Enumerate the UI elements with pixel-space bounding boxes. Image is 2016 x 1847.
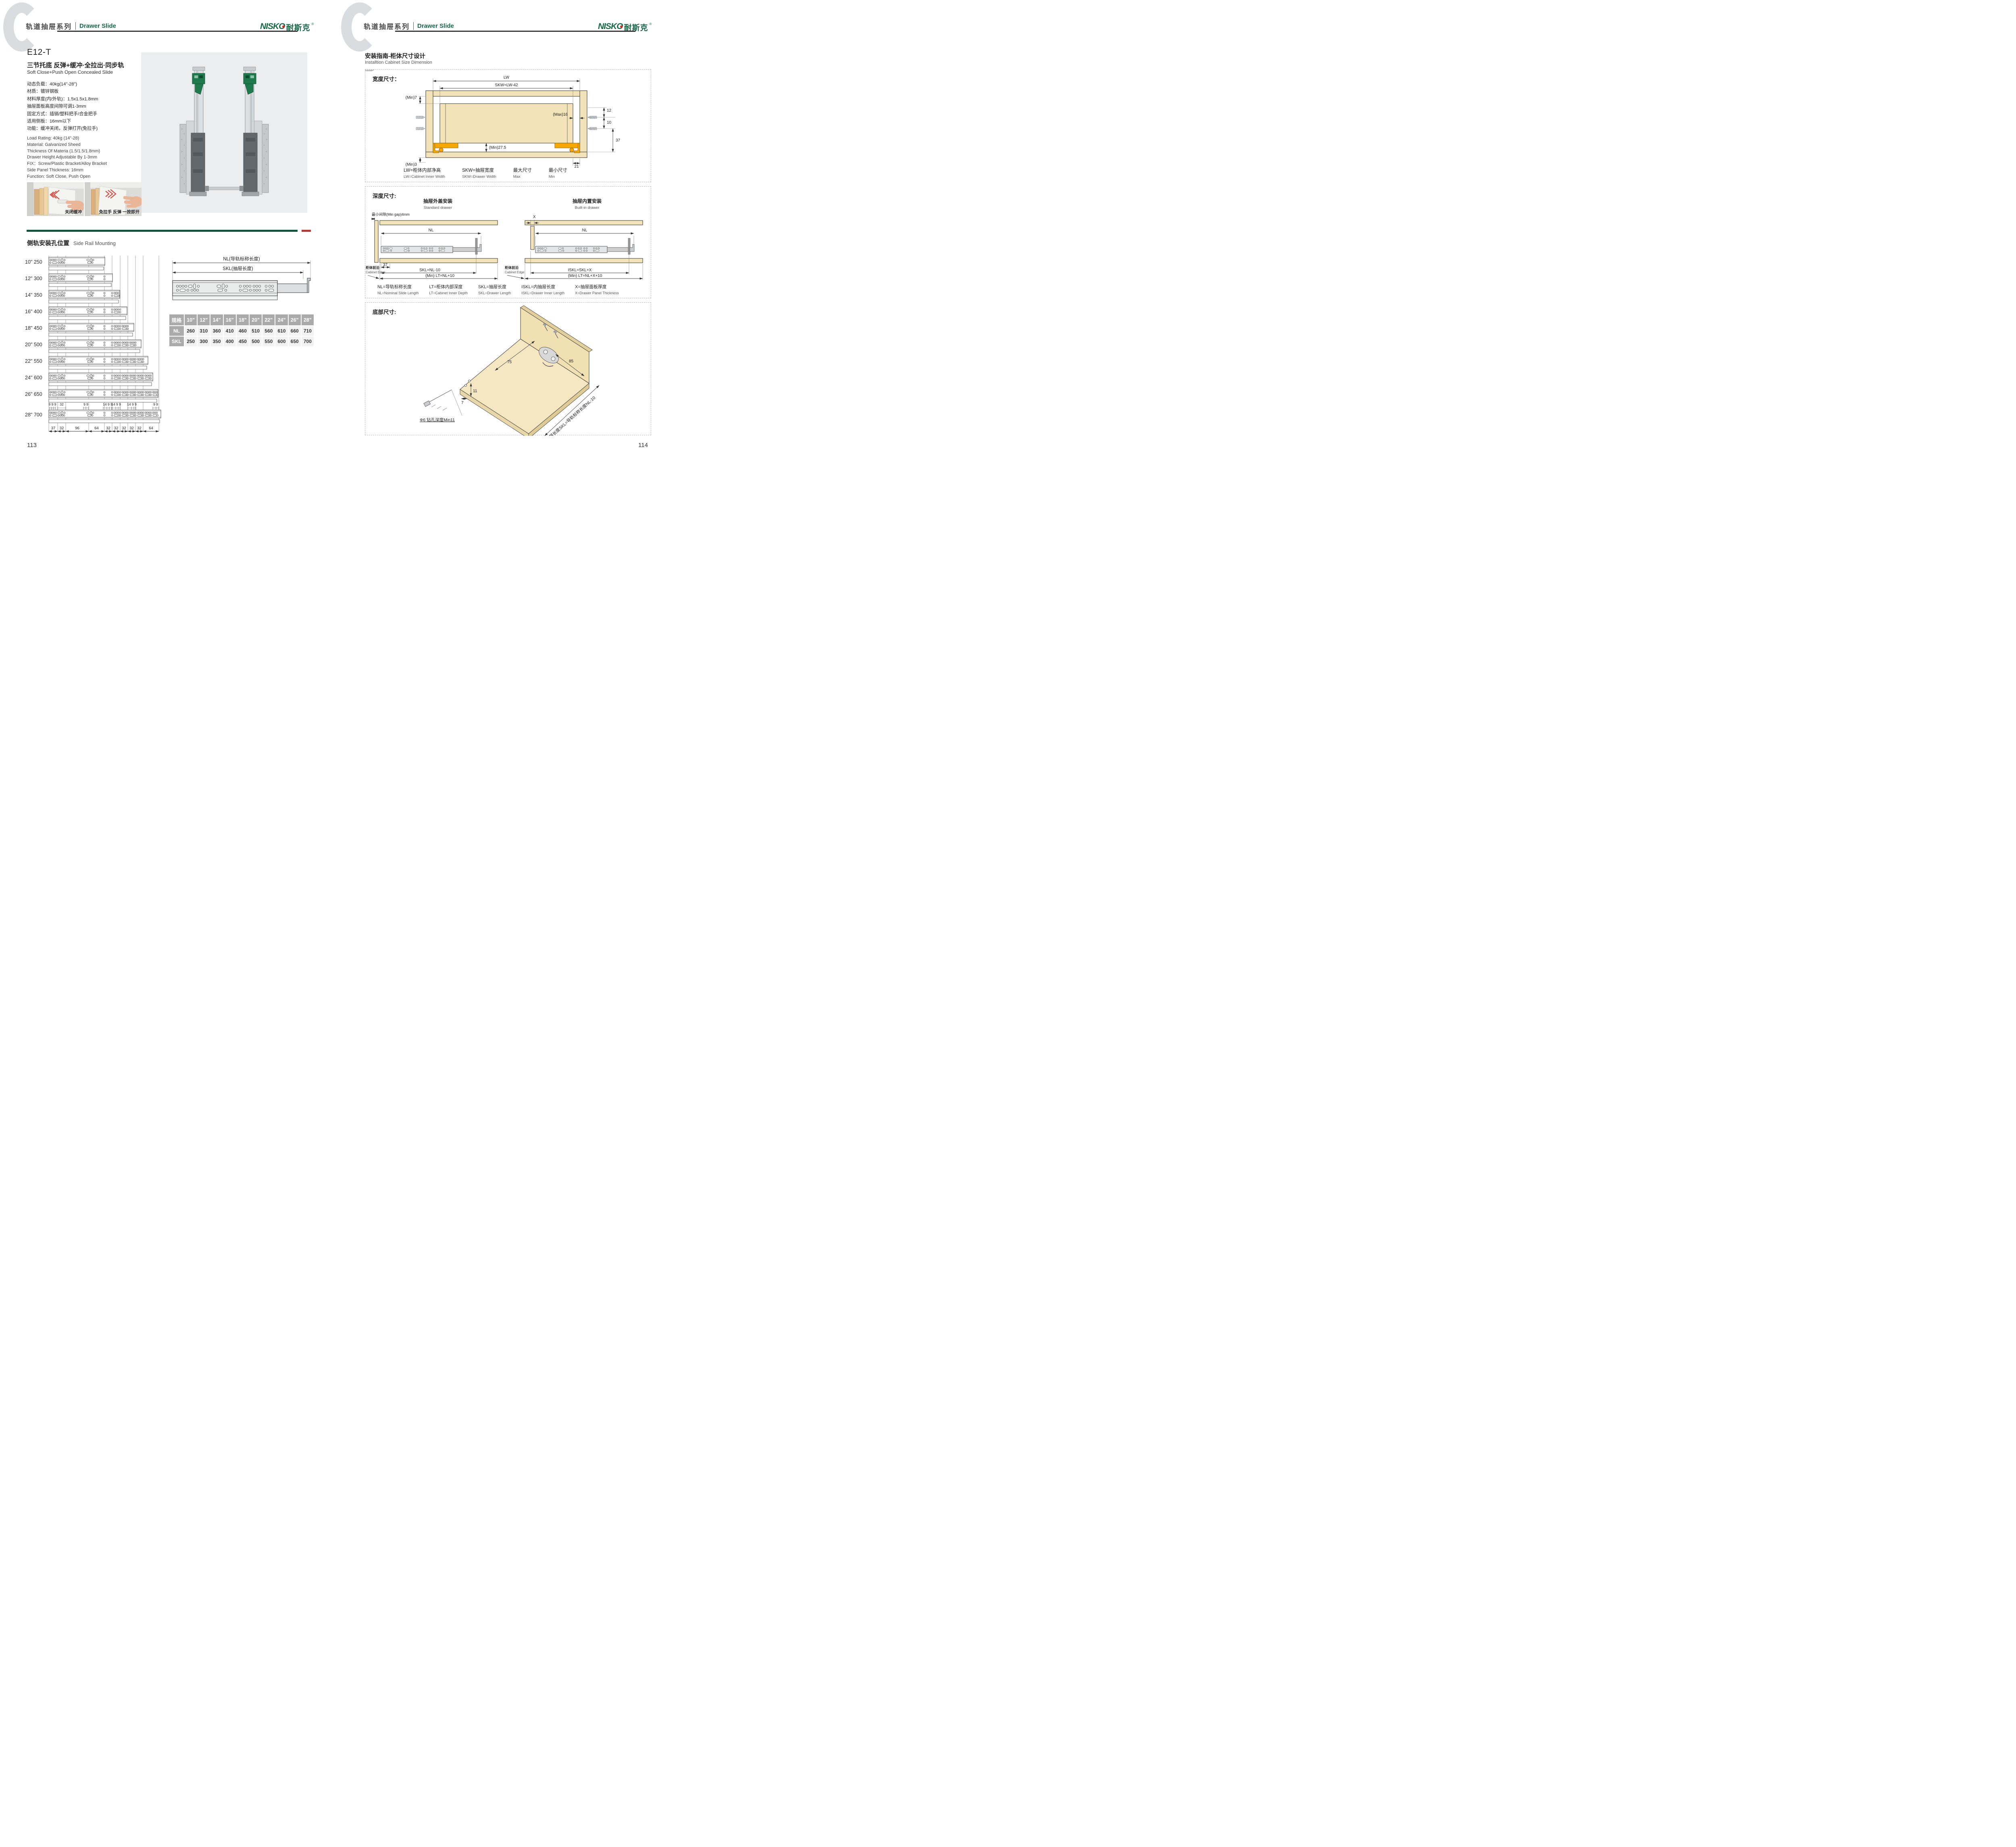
size-table-cell: 410 [224, 326, 236, 336]
sync-rod [207, 187, 241, 190]
logo-latin: NISKO [598, 22, 623, 31]
svg-text:22" 550: 22" 550 [25, 358, 42, 364]
dim-7: 7 [461, 401, 464, 405]
size-table-cell: 650 [289, 337, 301, 346]
legend-item: SKW=抽屉宽度 SKW=Drawer Width [462, 167, 496, 179]
dim-min27-5: (Min)27.5 [489, 146, 506, 150]
svg-text:26" 650: 26" 650 [25, 391, 42, 397]
size-table-cell: 310 [198, 326, 210, 336]
header-separator [75, 22, 76, 30]
size-table-cell: 10" [185, 314, 197, 325]
screw-icon [365, 70, 374, 71]
legend-cn: LW=柜体内部净高 [404, 167, 445, 173]
size-table-cell: 560 [262, 326, 275, 336]
dim-max16: (Max)16 [553, 112, 568, 117]
photo-caption: 免拉手 反弹 一按即开 [99, 209, 140, 215]
legend-en: ISKL=Drawer Inner Length [521, 291, 564, 295]
svg-text:64: 64 [94, 426, 99, 431]
legend-en: LW=Cabinet Inner Width [404, 175, 445, 179]
spec-en-line: Material: Galvanized Sheed [27, 142, 107, 148]
slide-hardware-right [555, 143, 580, 153]
size-table: 规格10"12"14"16"18"20"22"24"26"28"NL260310… [169, 314, 314, 346]
size-table-cell: 500 [250, 337, 262, 346]
size-table-cell: 26" [289, 314, 301, 325]
photo-caption: 关闭缓冲 [65, 209, 82, 215]
drill-note: Φ6 钻孔深度Min11 [420, 417, 455, 422]
page-header: 轨道抽屉系列 Drawer Slide [26, 21, 116, 31]
rail-row: 16" 400 [25, 307, 127, 320]
builtin-drawer-diagram: 抽屉内置安装 Built-in drawer X [504, 198, 643, 280]
legend-item: 最大尺寸 Max [513, 167, 532, 179]
depth-legend: NL=导轨标称长度 NL=Nominal Slide Length LT=柜体内… [377, 283, 619, 295]
page-number: 113 [27, 442, 37, 449]
size-table-cell: NL [169, 326, 184, 336]
series-title-en: Drawer Slide [417, 23, 454, 29]
legend-en: SKW=Drawer Width [462, 175, 496, 179]
nl-dim-label: NL(导轨标称长度) [223, 256, 260, 262]
svg-text:32: 32 [60, 426, 64, 431]
dim-85: 85 [569, 359, 574, 364]
install-guide-title-cn: 安装指南-柜体尺寸设计 [365, 52, 425, 60]
legend-item: ISKL=内抽屉长度 ISKL=Drawer Inner Length [521, 283, 564, 295]
legend-cn: 最小尺寸 [549, 167, 567, 173]
svg-text:28" 700: 28" 700 [25, 412, 42, 418]
svg-text:32: 32 [114, 426, 119, 431]
dim-11: 11 [473, 389, 477, 393]
skl-dim-label: SKL(抽屉长度) [223, 266, 253, 271]
catalog-spread: 轨道抽屉系列 Drawer Slide NISKO 耐斯克 ® E12-T 三节… [0, 0, 676, 462]
dim-lt: (Min) LT=NL+10 [425, 274, 455, 278]
svg-text:24" 600: 24" 600 [25, 375, 42, 381]
size-table-cell: 22" [262, 314, 275, 325]
legend-en: LT=Cabinet Inner Depth [429, 291, 468, 295]
svg-text:9 9 9: 9 9 9 [49, 402, 56, 406]
rail-row: 20" 500 [25, 340, 141, 353]
dim-12: 12 [607, 108, 612, 113]
legend-en: Min [549, 175, 567, 179]
svg-text:9 9: 9 9 [153, 402, 158, 406]
photo-push-open: 免拉手 反弹 一按即开 [85, 182, 142, 216]
svg-text:16" 400: 16" 400 [25, 309, 42, 314]
svg-text:18" 450: 18" 450 [25, 325, 42, 331]
rail-row: 12" 300 [25, 274, 112, 287]
dim-37: 37 [383, 263, 388, 267]
dim-nl: NL [582, 228, 587, 233]
size-table-cell: 14" [210, 314, 223, 325]
size-table-cell: 510 [250, 326, 262, 336]
dim-lt: (Min) LT=NL+X+10 [568, 274, 602, 278]
standard-drawer-diagram: 抽屉外盖安装 Standard drawer 最小间隙(Min gap)4mm [365, 198, 498, 280]
dim-75: 75 [507, 360, 512, 364]
svg-text:12" 300: 12" 300 [25, 276, 42, 281]
rail-row: 28" 700 [25, 410, 161, 423]
spec-cn-line: 动态负载：40kg(14"-28") [27, 81, 98, 88]
rail-row: 18" 450 [25, 323, 134, 336]
svg-text:32: 32 [122, 426, 126, 431]
section-title-cn: 侧轨安装孔位置 [27, 239, 69, 247]
product-subtitle-en: Soft Close+Push Open Concealed Slide [27, 69, 113, 75]
svg-text:14 9 9: 14 9 9 [111, 402, 121, 406]
logo-latin: NISKO [260, 22, 285, 31]
svg-text:10" 250: 10" 250 [25, 259, 42, 265]
width-legend: LW=柜体内部净高 LW=Cabinet Inner Width SKW=抽屉宽… [404, 167, 567, 179]
svg-text:32: 32 [137, 426, 142, 431]
spec-en-line: FIX：Screw/Plastic Bracket/Alloy Bracket [27, 161, 107, 167]
series-title-cn: 轨道抽屉系列 [26, 21, 72, 31]
size-table-cell: 400 [224, 337, 236, 346]
legend-item: LW=柜体内部净高 LW=Cabinet Inner Width [404, 167, 445, 179]
spec-en-line: Function: Soft Close, Push Open [27, 174, 107, 180]
logo-registered-icon: ® [650, 22, 652, 26]
legend-cn: ISKL=内抽屉长度 [521, 283, 564, 290]
spec-en-line: Side Panel Thickness: 16mm [27, 167, 107, 174]
section-divider-red [302, 230, 311, 232]
photo-soft-close: 关闭缓冲 [27, 182, 84, 216]
size-table-cell: 250 [185, 337, 197, 346]
page-header: 轨道抽屉系列 Drawer Slide [364, 21, 454, 31]
legend-en: NL=Nominal Slide Length [377, 291, 419, 295]
standard-title-cn: 抽屉外盖安装 [423, 198, 452, 204]
size-table-cell: 460 [237, 326, 249, 336]
legend-item: 最小尺寸 Min [549, 167, 567, 179]
dim-skw: SKW=LW-42 [495, 83, 518, 87]
legend-cn: LT=柜体内部深度 [429, 283, 468, 290]
header-rule [395, 31, 635, 32]
legend-item: X=抽屉面板厚度 X=Drawer Panel Thickness [575, 283, 619, 295]
spec-en-line: Load Rating: 40kg (14"-28) [27, 135, 107, 142]
size-table-cell: 300 [198, 337, 210, 346]
standard-title-en: Standard drawer [424, 206, 452, 210]
size-table-cell: 260 [185, 326, 197, 336]
header-separator [413, 22, 414, 30]
svg-text:96: 96 [75, 426, 79, 431]
legend-cn: X=抽屉面板厚度 [575, 283, 619, 290]
size-table-cell: 360 [210, 326, 223, 336]
legend-en: SKL=Drawer Length [478, 291, 511, 295]
builtin-title-en: Built-in drawer [575, 206, 600, 210]
series-title-en: Drawer Slide [79, 23, 116, 29]
rail-row: 10" 250 [25, 257, 105, 270]
dim-nl: NL [429, 228, 434, 233]
svg-text:32: 32 [106, 426, 110, 431]
product-subtitle-cn: 三节托底 反弹+缓冲·全拉出·同步轨 [27, 60, 124, 69]
size-table-cell: 700 [302, 337, 314, 346]
size-table-cell: 600 [275, 337, 287, 346]
spec-cn-line: 抽屉面板高度间隙可调1-3mm [27, 103, 98, 110]
header-rule [57, 31, 298, 32]
section-title-en: Side Rail Mounting [73, 241, 116, 246]
legend-cn: NL=导轨标称长度 [377, 283, 419, 290]
product-photo [141, 52, 307, 213]
specs-en-list: Load Rating: 40kg (14"-28)Material: Galv… [27, 135, 107, 180]
size-table-cell: 16" [224, 314, 236, 325]
size-table-cell: 550 [262, 337, 275, 346]
legend-item: LT=柜体内部深度 LT=Cabinet Inner Depth [429, 283, 468, 295]
dim-min3: (Min)3 [406, 162, 417, 167]
legend-item: SKL=抽屉长度 SKL=Drawer Length [478, 283, 511, 295]
cabinet-edge-cn: 柜体前沿 [504, 266, 519, 270]
rail-row: 14" 350 [25, 290, 120, 303]
bottom-dimension-drawing: 75 85 11 7 Φ6 钻孔深度Min11 抽屉长度SKL=导轨标称长度NL… [365, 303, 652, 436]
dim-10: 10 [607, 121, 612, 125]
svg-text:64: 64 [149, 426, 153, 431]
min-gap-note: 最小间隙(Min gap)4mm [372, 212, 410, 216]
size-table-cell: 710 [302, 326, 314, 336]
width-dimension-drawing: LW SKW=LW-42 (Min)7 (Max)16 12 10 37 (Mi… [365, 70, 652, 168]
slide-length-diagram: NL(导轨标称长度) SKL(抽屉长度) [169, 252, 314, 306]
size-table-cell: SKL [169, 337, 184, 346]
svg-text:14" 350: 14" 350 [25, 292, 42, 298]
slide-pair-image [141, 52, 307, 213]
svg-text:37: 37 [51, 426, 56, 431]
size-table-cell: 24" [275, 314, 287, 325]
dim-x: X [533, 215, 536, 219]
spec-cn-line: 材料厚度(内/外轨)：1.5x1.5x1.8mm [27, 96, 98, 103]
cabinet-edge-en: Cabinet Edge [366, 270, 385, 274]
builtin-title-cn: 抽屉内置安装 [573, 198, 602, 204]
spec-cn-line: 材质：镀锌钢板 [27, 88, 98, 95]
cabinet-edge-cn: 柜体前沿 [365, 266, 380, 270]
svg-text:20" 500: 20" 500 [25, 342, 42, 347]
size-table-cell: 450 [237, 337, 249, 346]
specs-cn-list: 动态负载：40kg(14"-28")材质：镀锌钢板材料厚度(内/外轨)：1.5x… [27, 81, 98, 133]
rail-row: 26" 650 [25, 389, 158, 402]
slide-hardware-left [433, 143, 458, 153]
size-table-cell: 18" [237, 314, 249, 325]
legend-item: NL=导轨标称长度 NL=Nominal Slide Length [377, 283, 419, 295]
size-table-cell: 350 [210, 337, 223, 346]
dim-iskl: ISKL=SKL+X [568, 268, 592, 272]
model-code: E12-T [27, 48, 51, 57]
cabinet-edge-en: Cabinet Edge [505, 270, 525, 274]
dim-skl: SKL=NL-10 [419, 268, 440, 272]
size-table-cell: 规格 [169, 314, 184, 325]
rail-row: 22" 550 [25, 356, 148, 369]
svg-text:9 9: 9 9 [83, 402, 88, 406]
legend-cn: SKL=抽屉长度 [478, 283, 511, 290]
logo-registered-icon: ® [312, 22, 314, 26]
spec-en-line: Thickness Of Materia (1.5/1.5/1.8mm) [27, 148, 107, 155]
side-rail-mounting-title: 侧轨安装孔位置 Side Rail Mounting [27, 239, 116, 247]
page-number: 114 [638, 442, 648, 449]
spec-cn-line: 功能：缓冲关闭，反弹打开(免拉手) [27, 125, 98, 132]
series-title-cn: 轨道抽屉系列 [364, 21, 410, 31]
depth-dimension-drawing: 抽屉外盖安装 Standard drawer 最小间隙(Min gap)4mm [365, 198, 652, 291]
bottom-dimension-panel: 底部尺寸: 75 [365, 302, 651, 435]
spec-cn-line: 适用侧板：16mm以下 [27, 118, 98, 125]
section-divider-green [27, 230, 298, 232]
depth-dimension-panel: 深度尺寸: 抽屉外盖安装 Standard drawer 最小间隙(Min ga… [365, 186, 651, 298]
dim-min7: (Min)7 [406, 96, 417, 100]
dim-37: 37 [616, 138, 621, 143]
width-dimension-panel: 宽度尺寸： [365, 69, 651, 182]
spec-cn-line: 固定方式：插销/塑料把手/合金把手 [27, 110, 98, 118]
drill-bit [424, 390, 452, 410]
spec-en-line: Drawer Height Adjustable By 1-3mm [27, 154, 107, 161]
install-guide-title-en: Installtion Cabinet Size Dimension [365, 60, 432, 65]
size-table-cell: 12" [198, 314, 210, 325]
size-table-cell: 20" [250, 314, 262, 325]
size-table-cell: 660 [289, 326, 301, 336]
rail-row: 24" 600 [25, 373, 153, 386]
legend-cn: 最大尺寸 [513, 167, 532, 173]
svg-text:32: 32 [129, 426, 134, 431]
size-table-cell: 610 [275, 326, 287, 336]
legend-en: Max [513, 175, 532, 179]
svg-text:14 9 9: 14 9 9 [127, 402, 137, 406]
page-113: 轨道抽屉系列 Drawer Slide NISKO 耐斯克 ® E12-T 三节… [0, 0, 338, 462]
legend-cn: SKW=抽屉宽度 [462, 167, 496, 173]
dim-21: 21 [574, 164, 579, 168]
size-table-cell: 28" [302, 314, 314, 325]
legend-en: X=Drawer Panel Thickness [575, 291, 619, 295]
dim-lw: LW [504, 75, 510, 80]
svg-text:32: 32 [60, 402, 64, 406]
